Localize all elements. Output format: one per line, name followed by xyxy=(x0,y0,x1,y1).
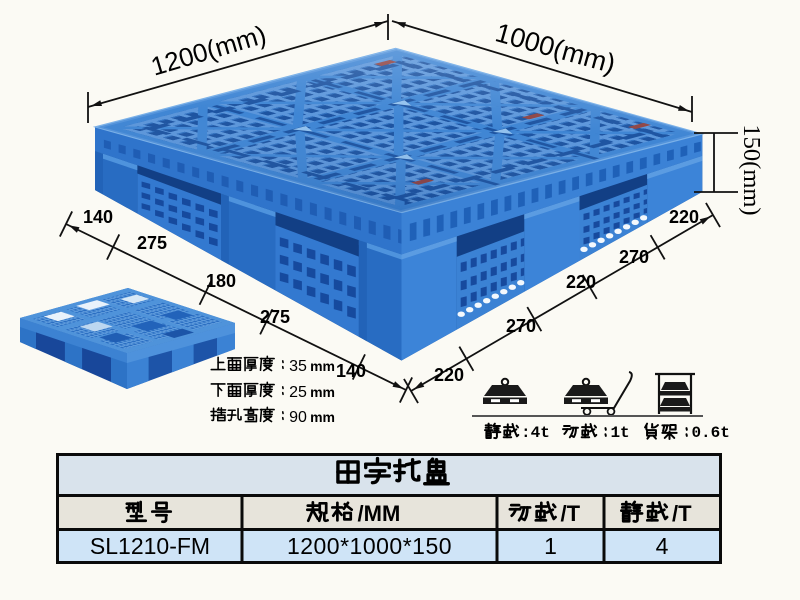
svg-text:4: 4 xyxy=(656,533,669,559)
svg-text:/T: /T xyxy=(561,501,581,526)
svg-text:SL1210-FM: SL1210-FM xyxy=(90,533,210,559)
svg-text:275: 275 xyxy=(260,307,290,327)
svg-text:220: 220 xyxy=(566,272,596,292)
svg-text:270: 270 xyxy=(506,316,536,336)
svg-text:150(mm): 150(mm) xyxy=(738,124,765,215)
svg-text:220: 220 xyxy=(669,207,699,227)
svg-text:/MM: /MM xyxy=(358,501,401,526)
svg-text::4t: :4t xyxy=(521,424,550,442)
svg-text:90: 90 xyxy=(289,409,307,426)
svg-text:220: 220 xyxy=(434,365,464,385)
svg-text:140: 140 xyxy=(83,207,113,227)
svg-text:1t: 1t xyxy=(610,424,629,442)
svg-text:/T: /T xyxy=(672,501,692,526)
svg-text:35: 35 xyxy=(289,358,307,375)
svg-text:25: 25 xyxy=(289,384,307,401)
svg-text:270: 270 xyxy=(619,247,649,267)
svg-text:1: 1 xyxy=(544,533,557,559)
svg-text:0.6t: 0.6t xyxy=(691,424,729,442)
svg-text:180: 180 xyxy=(206,271,236,291)
svg-text:mm: mm xyxy=(310,384,335,400)
svg-text:275: 275 xyxy=(137,233,167,253)
svg-text:1200*1000*150: 1200*1000*150 xyxy=(287,533,452,559)
svg-text:mm: mm xyxy=(310,409,335,425)
svg-text:mm: mm xyxy=(310,358,335,374)
svg-text:140: 140 xyxy=(336,361,366,381)
